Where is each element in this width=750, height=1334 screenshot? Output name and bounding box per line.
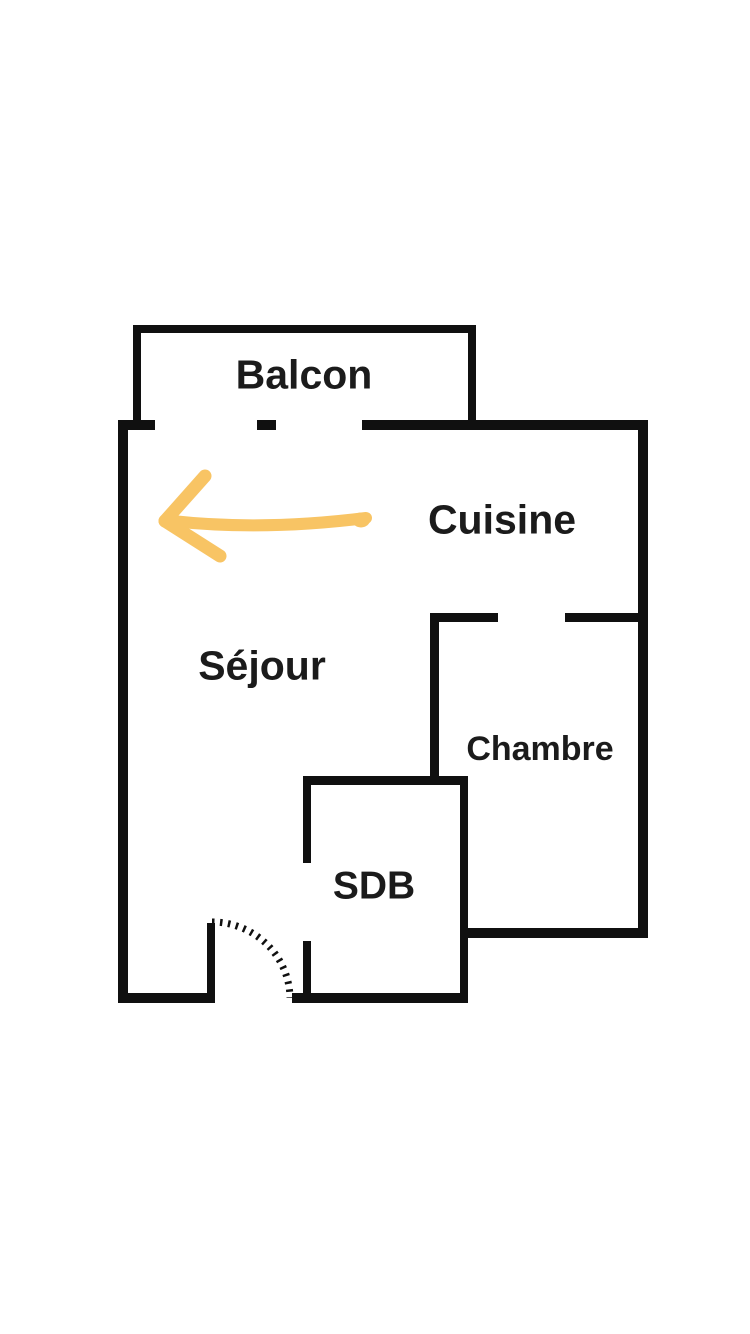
wall-chambre-left [430,613,439,785]
door-swing-arc [212,922,290,998]
floor-plan: Balcon Cuisine Séjour Chambre SDB [0,0,750,1334]
room-label-balcon: Balcon [236,355,373,396]
arrow-head-upper-barb [165,476,205,521]
wall-sdb-left-upper [303,776,311,863]
wall-sdb-right [460,776,468,1003]
wall-chambre-bottom [460,928,648,938]
wall-balcony-right [468,325,476,429]
wall-sdb-left-lower [303,941,311,1003]
wall-balcony-top [133,325,476,333]
wall-bottom-right-segment [292,993,468,1003]
room-label-cuisine: Cuisine [428,500,576,541]
wall-chambre-top-left [430,613,498,622]
wall-top-right-segment [362,420,648,430]
wall-chambre-top-right [565,613,648,622]
wall-sdb-top [303,776,468,785]
wall-left [118,420,128,1003]
wall-balcony-left [133,325,141,429]
wall-bottom-left-segment [118,993,215,1003]
wall-top-middle-segment [257,420,276,430]
direction-arrow [165,476,370,556]
arrow-shaft [172,518,366,525]
arrow-head-lower-barb [165,521,220,556]
room-label-sejour: Séjour [198,646,326,687]
room-label-sdb: SDB [333,867,415,906]
arrow-shaft-end-blob [352,513,370,528]
wall-right [638,420,648,938]
wall-entrance-door-jamb [207,923,215,1003]
room-label-chambre: Chambre [466,732,613,766]
